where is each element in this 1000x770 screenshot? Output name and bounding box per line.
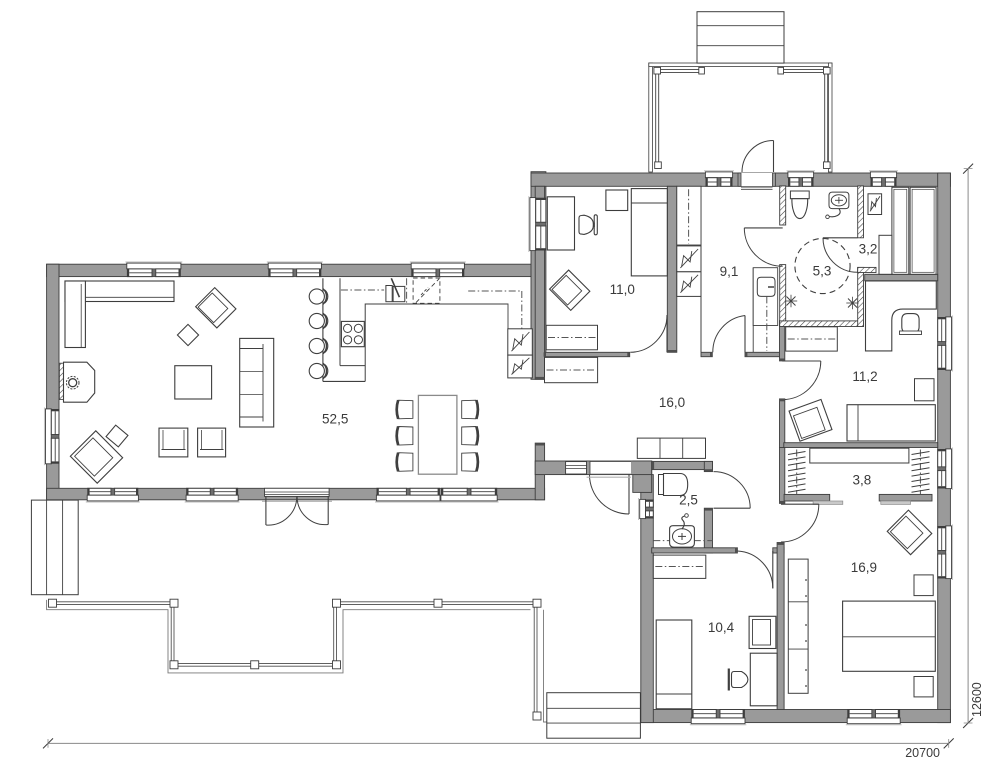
svg-text:3,8: 3,8 — [853, 473, 872, 488]
svg-text:16,0: 16,0 — [659, 395, 685, 410]
svg-text:10,4: 10,4 — [708, 620, 735, 635]
svg-text:16,9: 16,9 — [851, 560, 877, 575]
svg-text:52,5: 52,5 — [322, 412, 348, 427]
svg-text:9,1: 9,1 — [720, 264, 739, 279]
svg-text:11,2: 11,2 — [852, 369, 877, 384]
svg-text:5,3: 5,3 — [813, 264, 832, 279]
svg-text:12600: 12600 — [970, 682, 984, 717]
svg-text:3,2: 3,2 — [859, 242, 878, 257]
svg-text:20700: 20700 — [905, 746, 940, 760]
svg-text:11,0: 11,0 — [610, 282, 635, 297]
